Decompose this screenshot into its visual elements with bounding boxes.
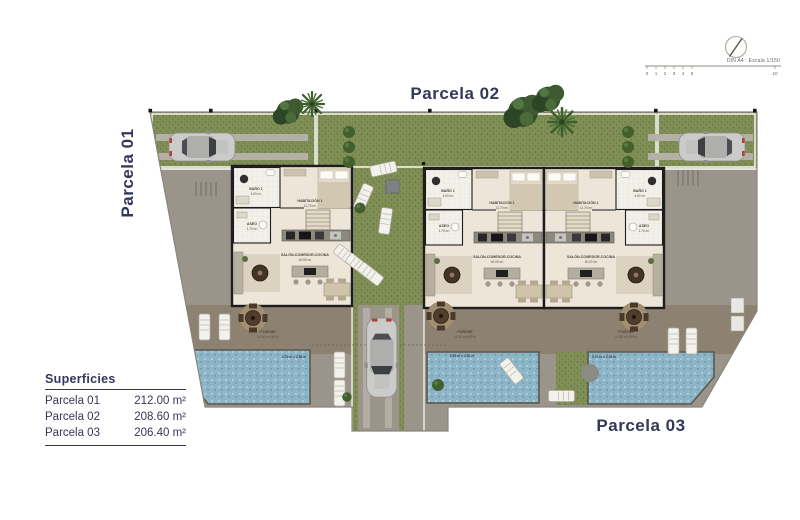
pool-3	[588, 352, 714, 404]
outdoor-pad	[386, 180, 399, 193]
room-label: BAÑO 1	[249, 186, 263, 191]
scale-tick: 5	[691, 71, 694, 76]
room-area: 40.00 m²	[299, 258, 312, 262]
car-icon	[169, 131, 235, 163]
parcel-name: Parcela 01	[45, 395, 100, 407]
room-area: 11.70 m²	[580, 206, 592, 210]
room-area: 40.00 m²	[491, 260, 504, 264]
room-area: 11.70 m²	[304, 204, 316, 208]
room-area: 1.70 m²	[639, 229, 650, 233]
parcel-area: 206.40 m²	[134, 427, 186, 439]
room-label: PORCHE	[260, 330, 276, 334]
parcel-name: Parcela 03	[45, 427, 100, 439]
room-area: 11.70 m²	[496, 206, 508, 210]
parcel-name: Parcela 02	[45, 411, 100, 423]
car-icon	[365, 318, 400, 397]
room-label: PORCHE	[618, 330, 634, 334]
room-label: PORCHE	[457, 330, 473, 334]
room-label: HABITACIÓN 1	[489, 200, 514, 205]
scale-tick: 1	[655, 71, 658, 76]
parcel-area: 208.60 m²	[134, 411, 186, 423]
parcel-area: 212.00 m²	[134, 395, 186, 407]
car-icon	[679, 131, 745, 163]
scale-tick: 4	[682, 71, 685, 76]
scale-note: DIN A4 : Escala 1/150	[727, 58, 780, 64]
table-row: Parcela 03 206.40 m²	[45, 423, 186, 439]
room-area: 1.70 m²	[439, 229, 450, 233]
superficies-body: Parcela 01 212.00 m² Parcela 02 208.60 m…	[45, 390, 186, 446]
table-row: Parcela 02 208.60 m²	[45, 407, 186, 423]
superficies-title: Superficies	[45, 372, 186, 390]
superficies-table: Superficies Parcela 01 212.00 m² Parcela…	[45, 372, 186, 446]
scale-tick: 0	[646, 71, 649, 76]
scale-tick: 3	[673, 71, 676, 76]
palm-icon	[548, 108, 576, 136]
gray-bush-icon	[581, 364, 599, 382]
pool-dim-label: 4.70 m x 2.35 m	[282, 355, 306, 359]
room-area: 4.00 m²	[635, 194, 646, 198]
room-label: SALÓN-COMEDOR-COCINA	[567, 254, 615, 259]
room-area: 4.00 m²	[443, 194, 454, 198]
pool-dim-label: 4.70 m x 2.35 m	[592, 355, 616, 359]
room-area: 14.50 m² (50%)	[257, 335, 279, 339]
room-label: ASEO	[639, 224, 649, 228]
room-label: ASEO	[247, 222, 257, 226]
room-label: SALÓN-COMEDOR-COCINA	[281, 252, 329, 257]
room-area: 1.70 m²	[247, 227, 258, 231]
table-row: Parcela 01 212.00 m²	[45, 391, 186, 407]
room-area: 4.00 m²	[251, 192, 262, 196]
parcela-01-label: Parcela 01	[118, 108, 138, 238]
floor-plan-page: DIN A4 : Escala 1/150 0 1 2 3 4 5 10 BAÑ…	[0, 0, 800, 520]
palm-icon	[300, 92, 324, 116]
room-label: BAÑO 1	[633, 188, 647, 193]
parcela-03-label: Parcela 03	[561, 416, 721, 436]
room-area: 14.50 m² (50%)	[454, 335, 476, 339]
room-label: BAÑO 1	[441, 188, 455, 193]
room-label: ASEO	[439, 224, 449, 228]
scale-bar: 0 1 2 3 4 5 10	[645, 66, 781, 76]
room-label: HABITACIÓN 1	[573, 200, 598, 205]
parcela-02-label: Parcela 02	[390, 84, 520, 104]
title-block: DIN A4 : Escala 1/150 0 1 2 3 4 5 10	[645, 37, 781, 77]
room-label: HABITACIÓN 1	[297, 198, 322, 203]
room-area: 14.50 m² (50%)	[615, 335, 637, 339]
tree-icon	[532, 85, 564, 113]
room-label: SALÓN-COMEDOR-COCINA	[473, 254, 521, 259]
pool-dim-label: 5.35 m x 2.30 m	[450, 354, 474, 358]
scale-tick: 2	[664, 71, 667, 76]
room-area: 40.00 m²	[585, 260, 598, 264]
scale-tick: 10	[772, 71, 778, 76]
